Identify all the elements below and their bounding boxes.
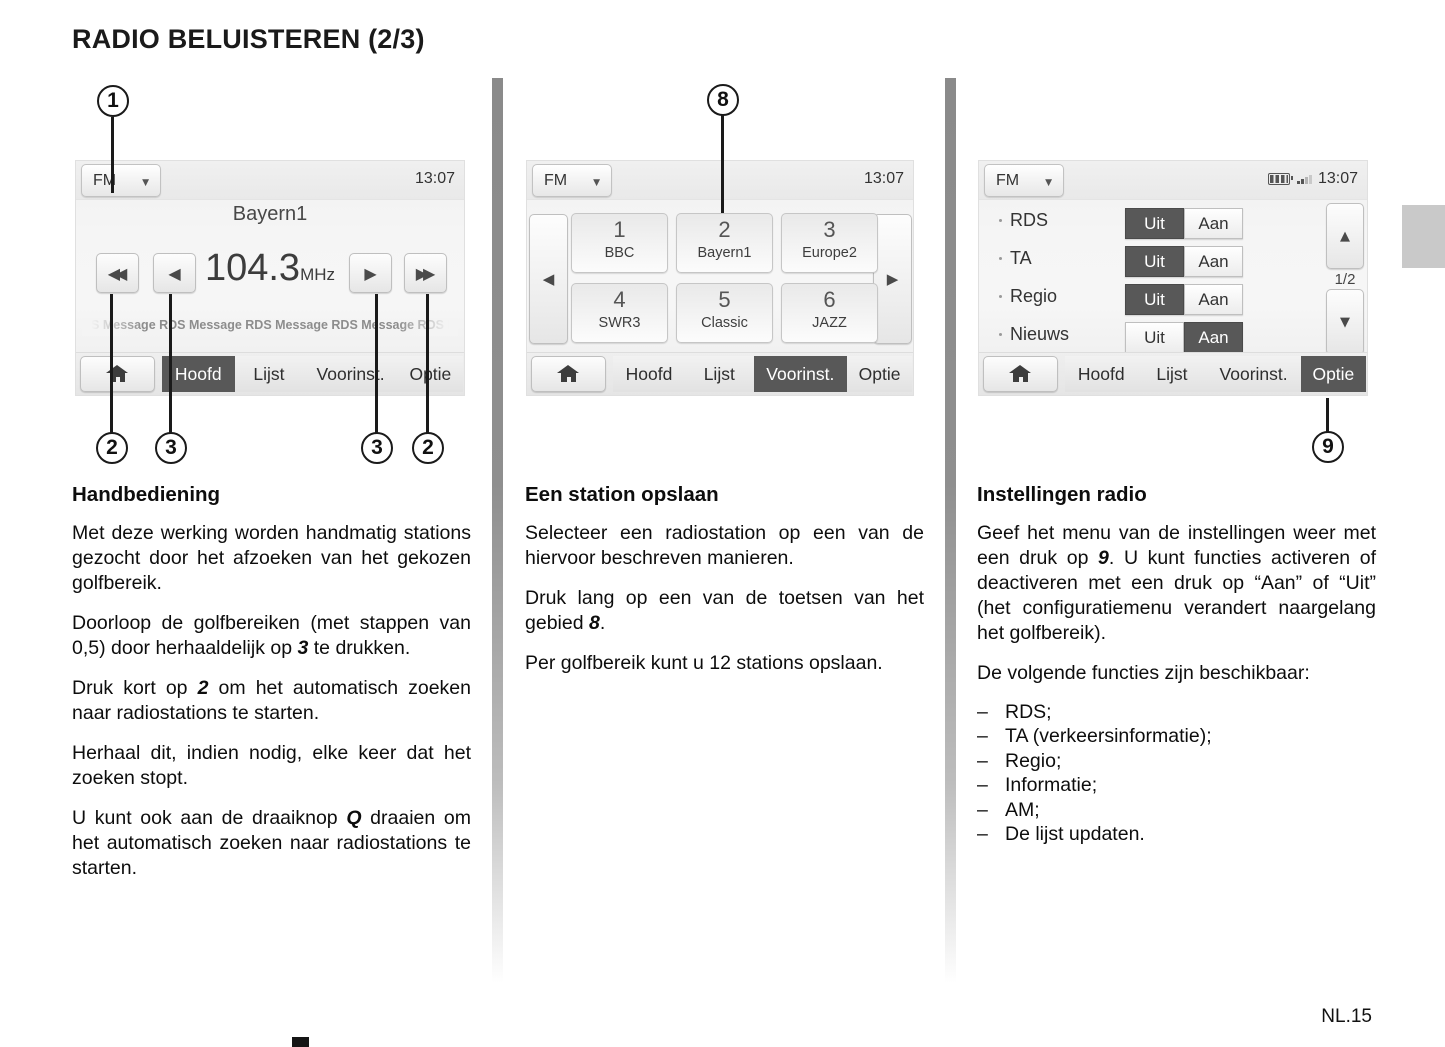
bullet-dot <box>999 219 1002 222</box>
bullet-dot <box>999 295 1002 298</box>
setting-label-regio: Regio <box>999 286 1057 307</box>
binding-mark <box>292 1037 309 1047</box>
toggle-regio: Uit Aan <box>1125 284 1243 315</box>
list-item: –AM; <box>977 799 1376 822</box>
paragraph: Geef het menu van de instellingen weer m… <box>977 521 1376 646</box>
clock: 13:07 <box>864 170 904 188</box>
list-item: –De lijst updaten. <box>977 823 1376 846</box>
regio-uit-button[interactable]: Uit <box>1125 284 1184 315</box>
callout-line-8 <box>721 115 724 213</box>
tab-voorinst[interactable]: Voorinst. <box>303 356 397 392</box>
page-number: NL.15 <box>1321 1006 1372 1028</box>
tab-lijst[interactable]: Lijst <box>1138 356 1207 392</box>
radio-screen-settings: FM 13:07 RDS Uit Aan TA Uit Aan Regio Ui… <box>978 160 1368 396</box>
nieuws-uit-button[interactable]: Uit <box>1125 322 1184 353</box>
callout-1: 1 <box>97 85 129 117</box>
preset-name: JAZZ <box>782 313 877 333</box>
list-item: –Informatie; <box>977 774 1376 797</box>
list-item: –Regio; <box>977 750 1376 773</box>
arrow-down-icon <box>1340 315 1350 330</box>
setting-label-ta: TA <box>999 248 1032 269</box>
callout-line-3 <box>169 294 172 433</box>
section-station-opslaan: Een station opslaan Selecteer een radios… <box>525 482 924 691</box>
bottom-bar: Hoofd Lijst Voorinst. Optie <box>76 352 464 395</box>
callout-3: 3 <box>155 432 187 464</box>
preset-button-6[interactable]: 6 JAZZ <box>781 283 878 343</box>
paragraph: Met deze werking worden handmatig stati­… <box>72 521 471 596</box>
tab-voorinst[interactable]: Voorinst. <box>754 356 848 392</box>
section-instellingen-radio: Instellingen radio Geef het menu van de … <box>977 482 1376 847</box>
section-heading: Een station opslaan <box>525 482 924 508</box>
band-select-button[interactable]: FM <box>81 164 161 197</box>
callout-8: 8 <box>707 84 739 116</box>
preset-button-1[interactable]: 1 BBC <box>571 213 668 273</box>
paragraph: U kunt ook aan de draaiknop Q draaien om… <box>72 806 471 881</box>
presets-page-right-button[interactable] <box>873 214 912 344</box>
radio-screen-presets: FM 13:07 1 BBC 2 Bayern1 3 Europe2 4 SWR… <box>526 160 914 396</box>
nieuws-aan-button[interactable]: Aan <box>1184 322 1243 353</box>
preset-name: BBC <box>572 243 667 263</box>
status-area: 13:07 <box>1268 170 1358 188</box>
band-select-button[interactable]: FM <box>984 164 1064 197</box>
functions-list: –RDS; –TA (verkeersinformatie); –Regio; … <box>977 701 1376 846</box>
callout-line-2b <box>426 294 429 433</box>
preset-button-4[interactable]: 4 SWR3 <box>571 283 668 343</box>
tab-lijst[interactable]: Lijst <box>685 356 753 392</box>
band-select-button[interactable]: FM <box>532 164 612 197</box>
band-label: FM <box>996 172 1019 190</box>
chevron-left-icon <box>543 270 555 288</box>
preset-number: 4 <box>572 287 667 313</box>
preset-button-3[interactable]: 3 Europe2 <box>781 213 878 273</box>
band-label: FM <box>544 172 567 190</box>
fast-forward-button[interactable] <box>404 253 447 293</box>
radio-screen-tuning: FM 13:07 Bayern1 104.3MHz DS Message RDS… <box>75 160 465 396</box>
tab-strip: Hoofd Lijst Voorinst. Optie <box>1065 356 1366 392</box>
chevron-down-icon <box>1045 172 1052 190</box>
tab-hoofd[interactable]: Hoofd <box>162 356 235 392</box>
chevron-down-icon <box>142 172 149 190</box>
tab-strip: Hoofd Lijst Voorinst. Optie <box>162 356 463 392</box>
home-button[interactable] <box>531 356 606 392</box>
column-divider <box>492 78 503 983</box>
preset-button-2[interactable]: 2 Bayern1 <box>676 213 773 273</box>
preset-name: SWR3 <box>572 313 667 333</box>
section-heading: Handbediening <box>72 482 471 508</box>
list-item: –RDS; <box>977 701 1376 724</box>
clock: 13:07 <box>1318 170 1358 188</box>
preset-number: 1 <box>572 217 667 243</box>
home-button[interactable] <box>983 356 1058 392</box>
step-forward-icon <box>364 264 376 283</box>
callout-2: 2 <box>96 432 128 464</box>
presets-page-left-button[interactable] <box>529 214 568 344</box>
page-title: RADIO BELUISTEREN (2/3) <box>72 24 425 55</box>
callout-line-9 <box>1326 398 1329 432</box>
preset-name: Europe2 <box>782 243 877 263</box>
paragraph: Per golfbereik kunt u 12 stations opslaa… <box>525 651 924 676</box>
callout-line-1 <box>111 117 114 193</box>
manual-page: RADIO BELUISTEREN (2/3) FM 13:07 Bayern1… <box>0 0 1445 1047</box>
callout-9: 9 <box>1312 431 1344 463</box>
frequency-unit: MHz <box>300 265 335 284</box>
chevron-right-icon <box>887 270 899 288</box>
bullet-dot <box>999 257 1002 260</box>
arrow-up-icon <box>1340 229 1350 244</box>
preset-number: 5 <box>677 287 772 313</box>
home-icon <box>561 373 576 382</box>
column-divider <box>945 78 956 983</box>
step-forward-button[interactable] <box>349 253 392 293</box>
fast-forward-icon <box>416 264 436 283</box>
section-edge-tab <box>1402 205 1445 268</box>
paragraph: Druk lang op een van de toetsen van het … <box>525 586 924 636</box>
bullet-dot <box>999 333 1002 336</box>
preset-name: Bayern1 <box>677 243 772 263</box>
preset-name: Classic <box>677 313 772 333</box>
callout-3b: 3 <box>361 432 393 464</box>
setting-label-nieuws: Nieuws <box>999 324 1069 345</box>
tab-optie[interactable]: Optie <box>1301 356 1366 392</box>
page-indicator: 1/2 <box>1326 271 1364 288</box>
tab-strip: Hoofd Lijst Voorinst. Optie <box>613 356 912 392</box>
tab-optie[interactable]: Optie <box>847 356 912 392</box>
preset-button-5[interactable]: 5 Classic <box>676 283 773 343</box>
list-item: –TA (verkeersinformatie); <box>977 725 1376 748</box>
rds-aan-button[interactable]: Aan <box>1184 208 1243 239</box>
section-handbediening: Handbediening Met deze werking worden ha… <box>72 482 471 896</box>
home-icon <box>1013 373 1028 382</box>
toggle-ta: Uit Aan <box>1125 246 1243 277</box>
signal-icon <box>1296 174 1312 184</box>
paragraph: Doorloop de golfbereiken (met stappen va… <box>72 611 471 661</box>
preset-number: 6 <box>782 287 877 313</box>
callout-line-3b <box>375 294 378 433</box>
bottom-bar: Hoofd Lijst Voorinst. Optie <box>979 352 1367 395</box>
tab-optie[interactable]: Optie <box>398 356 463 392</box>
station-name: Bayern1 <box>76 203 464 226</box>
callout-2b: 2 <box>412 432 444 464</box>
preset-number: 2 <box>677 217 772 243</box>
scroll-down-button[interactable] <box>1326 289 1364 355</box>
regio-aan-button[interactable]: Aan <box>1184 284 1243 315</box>
tab-hoofd[interactable]: Hoofd <box>613 356 685 392</box>
paragraph: Herhaal dit, indien nodig, elke keer dat… <box>72 741 471 791</box>
section-heading: Instellingen radio <box>977 482 1376 508</box>
rds-uit-button[interactable]: Uit <box>1125 208 1184 239</box>
tab-voorinst[interactable]: Voorinst. <box>1206 356 1300 392</box>
preset-number: 3 <box>782 217 877 243</box>
callout-line-2 <box>110 294 113 433</box>
tab-hoofd[interactable]: Hoofd <box>1065 356 1138 392</box>
clock: 13:07 <box>415 170 455 188</box>
scroll-up-button[interactable] <box>1326 203 1364 269</box>
paragraph: De volgende functies zijn beschikbaar: <box>977 661 1376 686</box>
ta-aan-button[interactable]: Aan <box>1184 246 1243 277</box>
frequency-value: 104.3 <box>205 247 300 289</box>
bottom-bar: Hoofd Lijst Voorinst. Optie <box>527 352 913 395</box>
toggle-rds: Uit Aan <box>1125 208 1243 239</box>
setting-label-rds: RDS <box>999 210 1048 231</box>
home-button[interactable] <box>80 356 155 392</box>
chevron-down-icon <box>593 172 600 190</box>
tab-lijst[interactable]: Lijst <box>235 356 304 392</box>
paragraph: Druk kort op 2 om het automatisch zoeken… <box>72 676 471 726</box>
battery-icon <box>1268 173 1290 185</box>
toggle-nieuws: Uit Aan <box>1125 322 1243 353</box>
paragraph: Selecteer een radiostation op een van de… <box>525 521 924 571</box>
rds-ticker: DS Message RDS Message RDS Message RDS M… <box>82 318 458 336</box>
ta-uit-button[interactable]: Uit <box>1125 246 1184 277</box>
